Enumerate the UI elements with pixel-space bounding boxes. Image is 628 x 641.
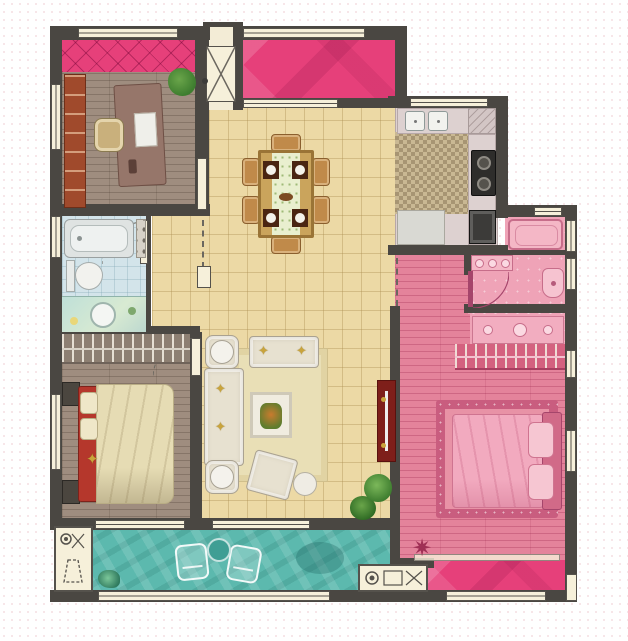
utility-closet (54, 526, 93, 592)
placemat-2 (292, 161, 308, 179)
master-pillow-2 (528, 464, 554, 500)
planter-pot (210, 465, 234, 489)
desk-phone (128, 159, 137, 173)
master-vanity (471, 255, 513, 271)
bedroom2-pillow-1 (80, 392, 98, 414)
wall-kitchen-south (388, 245, 508, 255)
corner-pillar (566, 574, 577, 601)
placemat-3 (263, 209, 279, 227)
vanity-sink (90, 302, 116, 328)
master-pillow-1 (528, 422, 554, 458)
opening-hall-dining (202, 220, 204, 268)
hall-column (197, 266, 211, 288)
master-bath-door-arc (473, 272, 509, 308)
window-kitchen-north (410, 98, 488, 107)
armchair-south (205, 460, 239, 494)
sofa-north: ✦ ✦ (249, 336, 319, 368)
equipment-bay (358, 564, 428, 592)
master-wardrobe (455, 344, 565, 370)
entry-door (206, 46, 236, 102)
master-balcony-floor (428, 560, 567, 592)
bookshelf (64, 74, 86, 208)
window-masterbed-balcony (414, 554, 560, 561)
bathtub-drain (77, 236, 82, 241)
burner-2 (477, 177, 491, 191)
tv-lamp (381, 397, 386, 402)
dining-chair-south (271, 236, 301, 254)
placemat-1 (263, 161, 279, 179)
window-east-1 (566, 220, 576, 252)
bedroom2-duvet (96, 384, 174, 504)
sofa-pillow-icon: ✦ (215, 383, 226, 396)
kitchen-sink-2 (428, 111, 448, 131)
tv-lamp (381, 443, 386, 448)
wall-balcony-east (395, 26, 407, 106)
vanity-decor (128, 307, 136, 315)
desk-chair (94, 118, 124, 152)
dining-chair-east-2 (312, 196, 330, 224)
window-balcony-sill (243, 99, 338, 108)
window-east-4 (566, 430, 576, 472)
placemat-4 (292, 209, 308, 227)
tv-cabinet (377, 380, 396, 462)
study-bay-window-seat (62, 38, 195, 72)
slider-living-balcony (212, 520, 310, 529)
balcony-plant (98, 570, 120, 588)
sofa-pillow-icon: ✦ (296, 345, 307, 358)
study-plant (168, 68, 196, 96)
wardrobe-rod (455, 356, 565, 358)
master-vanity-sink (475, 259, 484, 268)
refrigerator (469, 210, 496, 244)
bathroom-shelf-unit (136, 219, 146, 258)
master-bathtub-basin (515, 225, 558, 246)
wardrobe-rod (62, 348, 190, 350)
sofa-pillow-icon: ✦ (215, 421, 226, 434)
slider-bedroom2-balcony (95, 520, 185, 529)
window-bathroom-west (51, 216, 61, 258)
bed-ornament-icon: ✦ (86, 452, 99, 467)
balcony-table (207, 538, 231, 562)
shower-decor (483, 325, 493, 335)
master-vanity-sink (488, 259, 497, 268)
coffee-table-plant (260, 403, 282, 429)
starburst-decor-icon: ✷ (412, 534, 432, 562)
window-study-north (78, 28, 178, 38)
master-vanity-sink (501, 259, 510, 268)
bathroom-vanity (62, 296, 146, 332)
shower-decor (543, 325, 553, 335)
master-toilet (542, 268, 564, 298)
window-master-balcony (446, 591, 546, 601)
dining-chair-east-1 (312, 158, 330, 186)
bedroom2-wardrobe (62, 334, 190, 364)
armchair-north (205, 335, 239, 369)
bedroom2-pillow-2 (80, 418, 98, 440)
bathtub (64, 219, 134, 258)
pouf (293, 472, 317, 496)
balcony-shadow-rug (296, 542, 344, 574)
living-plant-2 (364, 474, 392, 502)
window-bedroom2-west (51, 394, 61, 470)
chair-slat (182, 565, 202, 569)
planter-pot (210, 340, 234, 364)
opening-master-entry (396, 258, 398, 306)
window-south-balcony (98, 591, 330, 601)
plate-1 (266, 165, 276, 175)
serving-dish (279, 193, 293, 201)
entry-shoe-cabinet (197, 158, 207, 210)
kitchen-sink-1 (405, 111, 425, 131)
vanity-decor (70, 317, 78, 325)
sink-drain (437, 120, 440, 123)
north-balcony-floor (241, 36, 397, 102)
kitchen-mosaic-floor (395, 132, 468, 214)
window-balcony-north (243, 28, 365, 38)
window-east-2 (566, 258, 576, 290)
plate-2 (295, 165, 305, 175)
coffee-table (250, 392, 292, 438)
master-bathtub (508, 219, 563, 250)
chair-slat (233, 566, 253, 571)
lounge-chair-1 (174, 542, 210, 581)
window-masterbath-north (534, 207, 562, 216)
desk-paper (134, 112, 158, 147)
window-east-3 (566, 350, 576, 378)
gas-stove (471, 150, 496, 196)
wall-kitchen-east (496, 96, 508, 218)
kitchen-counter-south (397, 210, 445, 245)
floor-plan: ✦ ✦ ✦ ✦ (0, 0, 628, 641)
sink-drain (414, 120, 417, 123)
sofa-west: ✦ ✦ (204, 368, 244, 466)
plate-4 (295, 213, 305, 223)
entry-doorbell-dot (202, 78, 208, 84)
toilet-tank (66, 260, 75, 292)
window-study-west (51, 84, 61, 150)
sofa-pillow-icon: ✦ (258, 345, 269, 358)
master-shower-vanity (472, 316, 564, 344)
burner-1 (477, 156, 491, 170)
dining-table (258, 150, 314, 238)
shower-decor (513, 323, 527, 337)
plate-3 (266, 213, 276, 223)
toilet-dot (551, 281, 556, 286)
kitchen-corner-rack (468, 108, 496, 134)
